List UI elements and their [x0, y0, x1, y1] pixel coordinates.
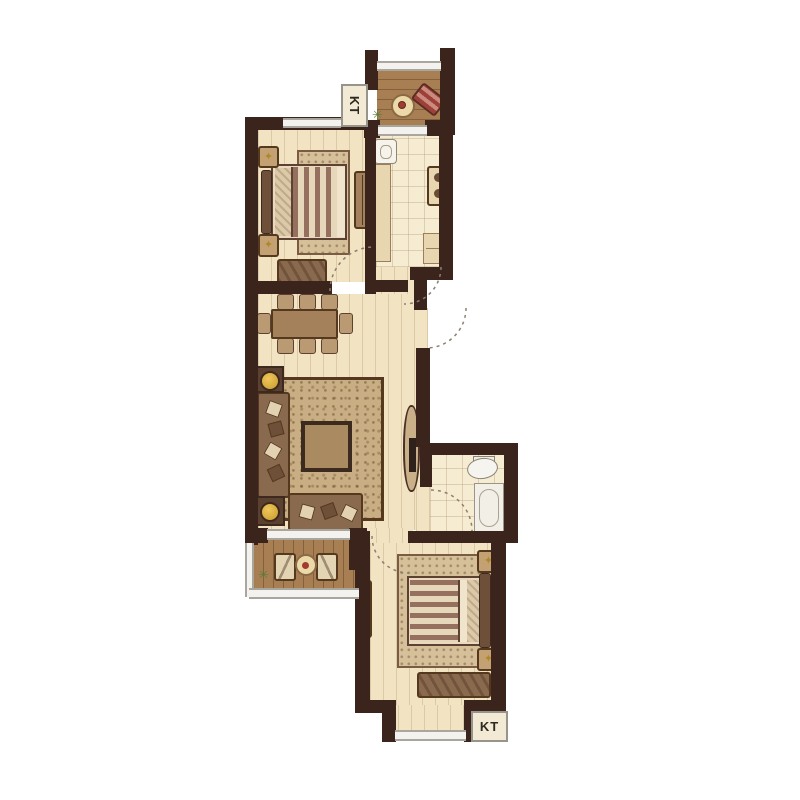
balcony-chair [274, 553, 296, 581]
balcony-door-window [267, 529, 350, 540]
balcony-round-table [295, 554, 317, 576]
wall-segment [491, 543, 506, 713]
star-icon: ✦ [260, 240, 277, 251]
wall-segment [504, 443, 518, 543]
wall-segment [355, 700, 385, 713]
sink-basin [380, 145, 392, 159]
bed-foot-fold [460, 580, 467, 642]
balcony-table-dish [398, 101, 406, 109]
bedroom-south-bed [407, 576, 481, 646]
bay-window-sill [395, 730, 466, 741]
window [283, 118, 341, 128]
nightstand: ✦ [258, 234, 279, 257]
bed-pillows [275, 168, 291, 236]
entry-door-floor [414, 308, 428, 350]
dining-table [271, 309, 338, 339]
bed-pillows [467, 580, 479, 642]
sofa-pillow [265, 400, 283, 418]
dining-chair [277, 338, 294, 354]
wall-segment [408, 531, 518, 543]
bedroom-north-bed [271, 164, 347, 240]
sofa-pillow [263, 441, 282, 460]
bedroom-south-bench [417, 672, 491, 698]
wall-segment [365, 130, 376, 294]
wardrobe-divider [362, 175, 363, 225]
balcony-chair [316, 553, 338, 581]
wall-segment [416, 348, 430, 447]
sofa-pillow [298, 503, 315, 520]
tv [409, 438, 416, 472]
window [377, 61, 441, 71]
bed-duvet [291, 167, 339, 237]
wall-segment [420, 443, 432, 487]
wall-segment [439, 130, 453, 280]
bed-foot-fold [337, 167, 345, 237]
dining-chair [321, 338, 338, 354]
sofa-pillow [340, 504, 359, 523]
table-dish [302, 562, 309, 569]
wall-segment [376, 280, 408, 292]
dining-chair [339, 313, 353, 334]
bed-headboard [261, 170, 272, 234]
sofa-pillow [267, 420, 284, 437]
lamp-icon [260, 371, 280, 391]
side-table [254, 496, 285, 526]
dining-chair [299, 338, 316, 354]
balcony-door-window [378, 125, 427, 136]
balcony-railing [249, 588, 359, 599]
loveseat [288, 493, 363, 531]
dining-chair [257, 313, 271, 334]
sofa-pillow [320, 502, 338, 520]
sofa-pillow [267, 464, 286, 483]
wall-segment [245, 528, 268, 543]
floor-plan: ✳ ✦ ✦ [0, 0, 800, 800]
kt-label-north: KT [341, 84, 368, 127]
kt-label-north-text: KT [347, 96, 362, 115]
lamp-icon [260, 502, 280, 522]
dining-chair [277, 294, 294, 310]
sofa [257, 392, 290, 498]
kt-label-south: KT [471, 711, 508, 742]
nightstand: ✦ [258, 146, 279, 168]
tub-basin [479, 489, 499, 527]
coffee-table [301, 421, 352, 472]
kitchen-counter [375, 164, 391, 262]
bathtub [474, 483, 504, 532]
bed-headboard [479, 573, 491, 648]
dining-chair [299, 294, 316, 310]
kitchen-sink [374, 139, 397, 164]
bed-duvet [410, 580, 460, 642]
side-table [256, 366, 284, 393]
dining-chair [321, 294, 338, 310]
star-icon: ✦ [260, 152, 277, 163]
wall-segment [382, 700, 396, 742]
kt-label-south-text: KT [480, 719, 499, 734]
plant-icon: ✳ [258, 568, 269, 581]
wall-segment [349, 528, 367, 570]
wall-segment [245, 281, 332, 294]
door-arc [426, 308, 466, 348]
wall-segment [245, 117, 258, 545]
wall-segment [414, 278, 427, 310]
